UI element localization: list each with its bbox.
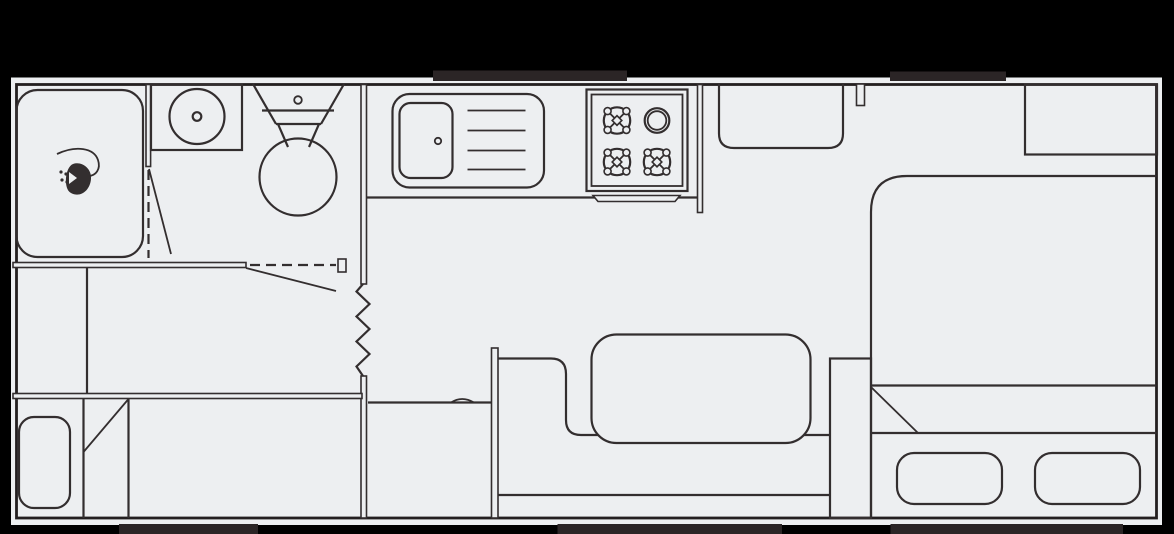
door-post [338, 259, 346, 272]
door-jamb-icon [857, 84, 865, 106]
bath-wall-upper [361, 85, 367, 285]
pantry-wall [698, 85, 703, 213]
bottom-slide-marker-3 [891, 524, 1124, 534]
sofa-cushion-icon [592, 335, 811, 444]
floor-plan-drawing [0, 0, 1174, 534]
floor-plan-canvas [0, 0, 1174, 534]
oven-handle [593, 196, 680, 202]
bedroom-wall-bar [13, 263, 246, 268]
bunk-wall-bar [13, 394, 362, 399]
sofa-end-panel [492, 348, 499, 518]
bottom-slide-marker-1 [119, 524, 258, 534]
top-slide-marker-2 [890, 72, 1006, 82]
bottom-slide-marker-2 [558, 524, 783, 534]
top-slide-marker-1 [433, 71, 627, 82]
